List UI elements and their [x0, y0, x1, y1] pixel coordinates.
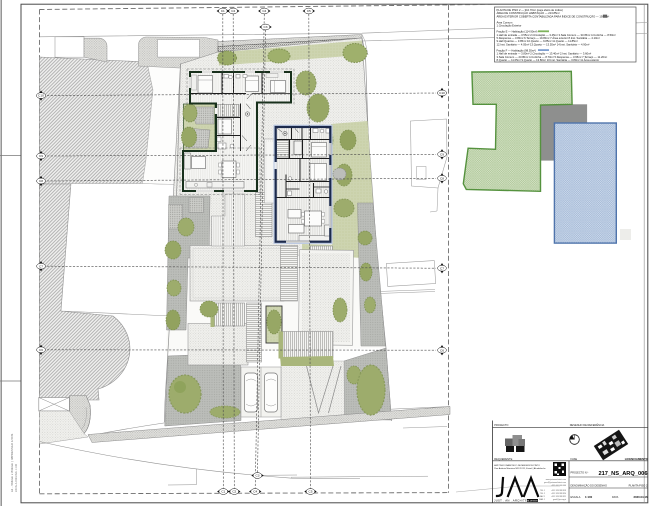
svg-text:C9: C9 [39, 154, 43, 158]
svg-text:+351 919 999 920: +351 919 999 920 [551, 493, 566, 495]
svg-text:geral@jm.arq.pt: geral@jm.arq.pt [553, 498, 567, 501]
svg-text:C4: C4 [253, 490, 257, 494]
svg-text:C5: C5 [309, 490, 313, 494]
svg-text:DATA: DATA [612, 496, 619, 499]
svg-text:+351 919 999 919: +351 919 999 919 [551, 490, 566, 492]
svg-text:1.Circulação Exterior: 1.Circulação Exterior [497, 24, 522, 28]
svg-text:8.Quarto — 11.05m² 9.Quarto: 8.Quarto — 11.05m² 9.Quarto — 13.80m² 10… [497, 58, 600, 62]
svg-text:+351 919 999 921: +351 919 999 921 [551, 496, 566, 498]
svg-text:MAIL 1: MAIL 1 [539, 498, 545, 501]
svg-text:FASE: FASE [571, 457, 578, 461]
svg-text:C6: C6 [440, 348, 444, 352]
svg-text:C7: C7 [440, 266, 444, 270]
svg-text:2020.04.16: 2020.04.16 [634, 495, 648, 499]
svg-text:C1: C1 [221, 490, 225, 494]
svg-text:C3: C3 [264, 25, 268, 29]
svg-text:PROJECTO: PROJECTO [494, 423, 508, 427]
svg-text:www.justanarchitect.com: www.justanarchitect.com [546, 478, 567, 481]
svg-text:217_NS_ARQ_006: 217_NS_ARQ_006 [598, 471, 647, 477]
svg-text:geral@justanarchitect.com: geral@justanarchitect.com [544, 481, 566, 484]
svg-text:ESCALA ORIGINAL 1:100: ESCALA ORIGINAL 1:100 [15, 463, 18, 492]
svg-text:C7: C7 [39, 264, 43, 268]
svg-text:TEL 2: TEL 2 [540, 493, 545, 495]
svg-text:1:100: 1:100 [585, 495, 593, 499]
svg-text:ESCALA: ESCALA [571, 496, 581, 499]
svg-text:12.Inst. Sanitária — 4.05m²: 12.Inst. Sanitária — 4.05m² 13.Quarto — … [497, 42, 590, 46]
svg-text:C4: C4 [262, 9, 266, 13]
svg-text:+351 000 000 000: +351 000 000 000 [551, 485, 566, 487]
svg-text:A1 - 594mm x 841mm | IMPRESSAO: A1 - 594mm x 841mm | IMPRESSAO A 50% [10, 433, 14, 492]
svg-text:Rua António Monteiro N59 2O11,: Rua António Monteiro N59 2O11, Estoril |… [494, 467, 546, 470]
svg-text:C1: C1 [221, 9, 225, 13]
svg-text:C2: C2 [231, 9, 235, 13]
svg-text:C6: C6 [39, 348, 43, 352]
svg-text:PROJECTO N.º: PROJECTO N.º [571, 471, 589, 475]
svg-text:C9: C9 [440, 152, 444, 156]
svg-text:REQUERENTE: REQUERENTE [494, 457, 512, 461]
svg-text:C3: C3 [256, 474, 260, 478]
svg-text:TEL 1: TEL 1 [540, 490, 545, 492]
svg-text:C10: C10 [38, 94, 44, 98]
svg-text:LICENCIAMENTO: LICENCIAMENTO [625, 457, 649, 461]
svg-text:C2: C2 [232, 490, 236, 494]
svg-text:C8: C8 [39, 179, 43, 183]
svg-text:PLANTA PISO 2: PLANTA PISO 2 [629, 484, 648, 488]
svg-text:C8: C8 [440, 176, 444, 180]
svg-text:ANTÓNIO FRANCISCO DE MEDEIROS: ANTÓNIO FRANCISCO DE MEDEIROS PINTO [494, 464, 540, 467]
svg-text:FAX 1: FAX 1 [540, 495, 545, 498]
svg-text:OFICINA DESIGN: OFICINA DESIGN [521, 500, 538, 503]
svg-text:DENOMINAÇÃO DO DESENHO: DENOMINAÇÃO DO DESENHO [571, 485, 607, 488]
svg-text:C5: C5 [307, 9, 311, 13]
svg-text:C10: C10 [439, 91, 445, 95]
